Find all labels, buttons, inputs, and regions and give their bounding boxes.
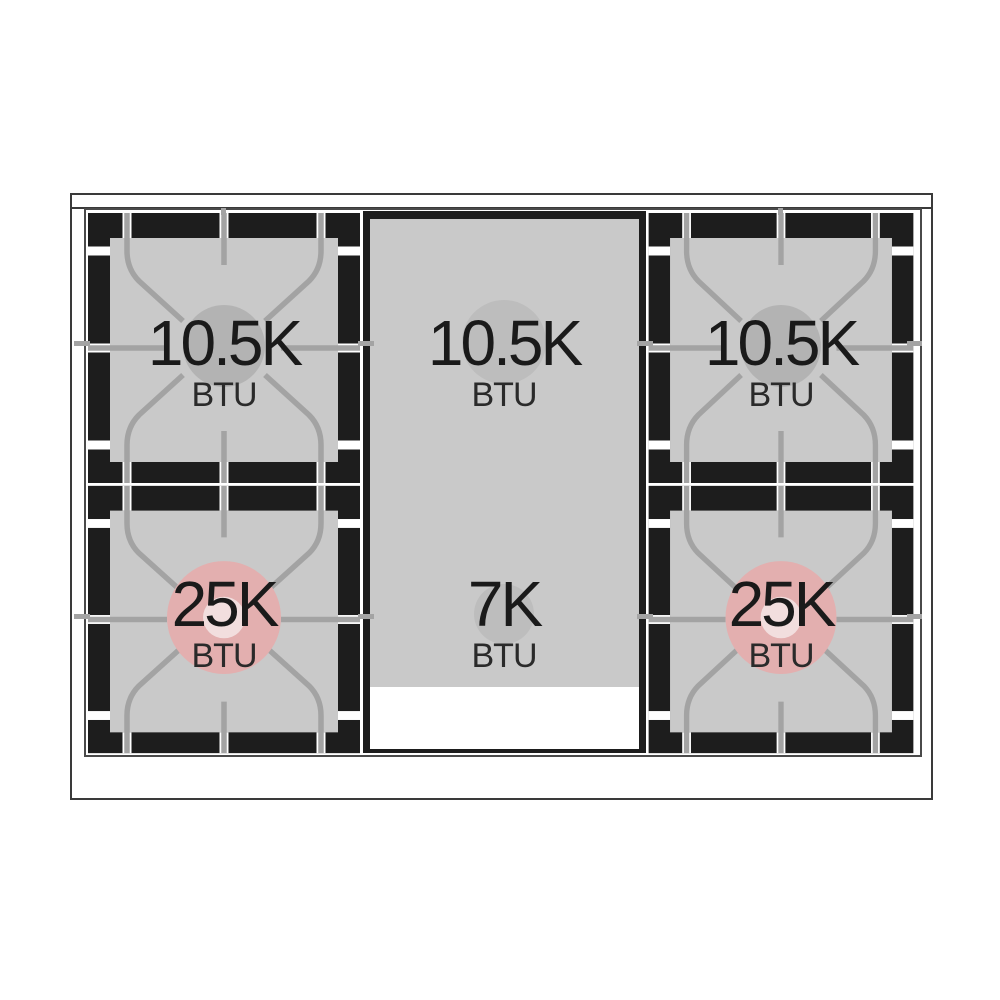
burner-power-label: 25K <box>671 572 891 636</box>
burner-unit-label: BTU <box>114 639 334 673</box>
burner-power-label: 7K <box>394 572 614 636</box>
burner-label-top-left: 10.5K BTU <box>114 311 334 412</box>
grate-finger <box>358 341 374 346</box>
grate-finger <box>637 614 653 619</box>
grate-finger <box>221 208 226 215</box>
grate-finger <box>907 341 922 346</box>
burner-unit-label: BTU <box>394 639 614 673</box>
burner-label-center-rear: 10.5K BTU <box>394 311 614 412</box>
grate-finger <box>778 208 783 215</box>
burner-label-bottom-left: 25K BTU <box>114 572 334 673</box>
burner-unit-label: BTU <box>394 378 614 412</box>
grate-finger <box>74 614 90 619</box>
burner-power-label: 10.5K <box>671 311 891 375</box>
burner-unit-label: BTU <box>114 378 334 412</box>
grate-finger <box>637 341 653 346</box>
griddle-front-strip <box>370 687 639 749</box>
burner-power-label: 10.5K <box>114 311 334 375</box>
burner-unit-label: BTU <box>671 639 891 673</box>
burner-power-label: 25K <box>114 572 334 636</box>
burner-unit-label: BTU <box>671 378 891 412</box>
burner-label-center-front: 7K BTU <box>394 572 614 673</box>
grate-finger <box>74 341 90 346</box>
grate-finger <box>907 614 922 619</box>
burner-label-bottom-right: 25K BTU <box>671 572 891 673</box>
burner-power-label: 10.5K <box>394 311 614 375</box>
burner-label-top-right: 10.5K BTU <box>671 311 891 412</box>
grate-finger <box>358 614 374 619</box>
